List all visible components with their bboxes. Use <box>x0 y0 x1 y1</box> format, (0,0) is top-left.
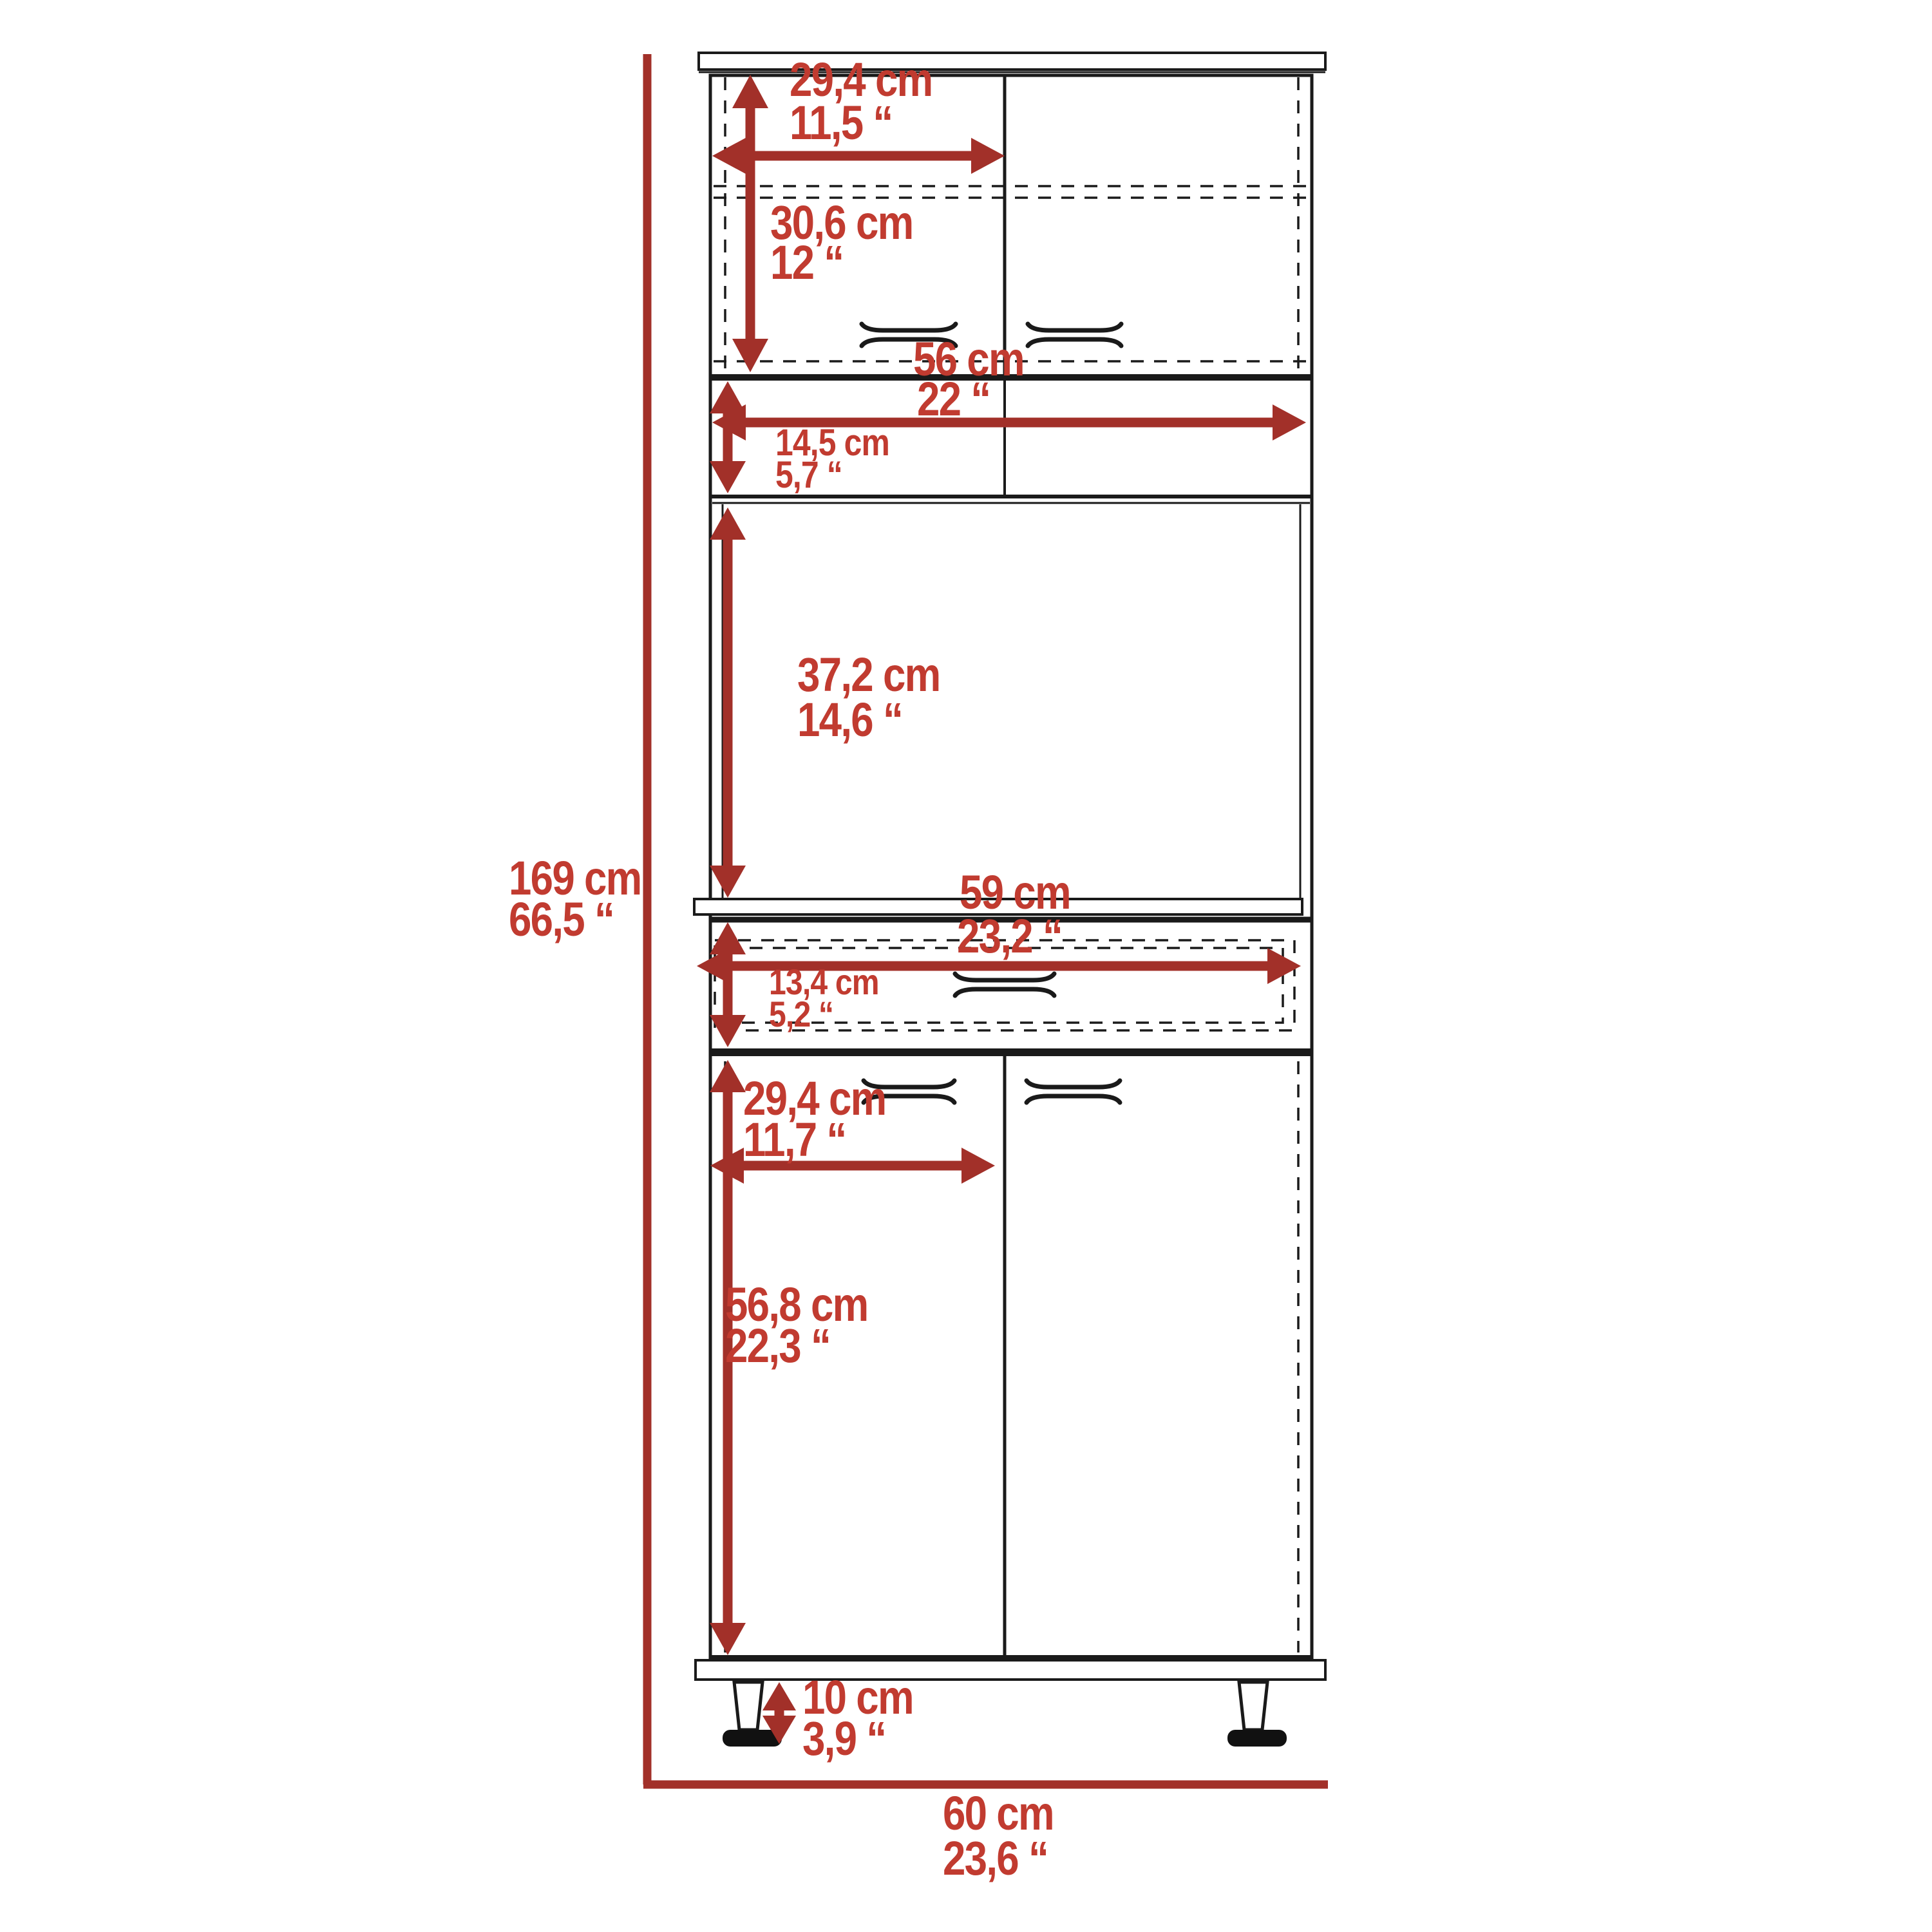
cabinet-dimension-diagram: 29,4 cm 11,5 “ 30,6 cm 12 “ 56 cm 22 “ 1… <box>0 0 1932 1932</box>
open-shelf-height-in: 5,7 “ <box>775 457 842 494</box>
upper-right-door-handle <box>1028 324 1121 346</box>
drawer-width-in: 23,2 “ <box>957 913 1062 960</box>
total-height-in: 66,5 “ <box>509 896 614 943</box>
base-board <box>696 1658 1325 1680</box>
diagram-drawing <box>0 0 1932 1932</box>
upper-cabinet-height-arrow <box>732 75 768 372</box>
upper-door-width-in: 11,5 “ <box>790 100 893 147</box>
total-width-in: 23,6 “ <box>943 1835 1048 1882</box>
drawer-handle <box>955 974 1054 996</box>
microwave-space-height-arrow <box>710 507 746 898</box>
left-leg <box>723 1682 782 1747</box>
total-width-cm: 60 cm <box>943 1790 1054 1837</box>
lower-door-width-in: 11,7 “ <box>743 1117 846 1164</box>
leg-height-in: 3,9 “ <box>802 1716 885 1763</box>
right-leg <box>1227 1682 1287 1747</box>
lower-right-door-handle <box>1027 1081 1120 1103</box>
microwave-space-height-cm: 37,2 cm <box>797 652 940 699</box>
drawer-height-in: 5,2 “ <box>769 997 833 1032</box>
lower-door-height-in: 22,3 “ <box>725 1323 830 1370</box>
interior-width-in: 22 “ <box>917 376 990 423</box>
upper-cabinet-height-in: 12 “ <box>770 240 843 287</box>
microwave-space-height-in: 14,6 “ <box>797 697 902 744</box>
